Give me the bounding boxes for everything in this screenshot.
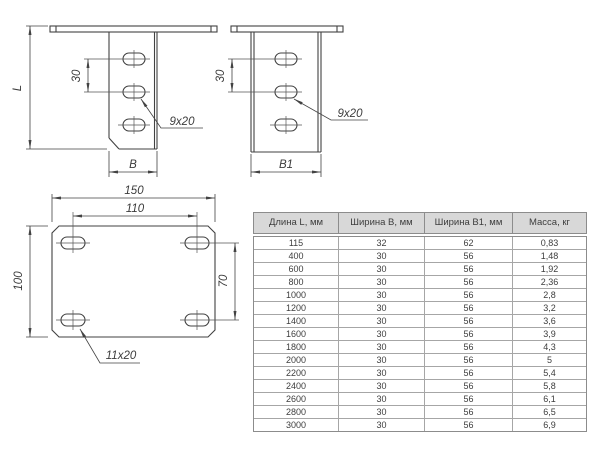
table-cell: 32: [338, 237, 424, 249]
table-cell: 1400: [254, 315, 338, 327]
table-cell: 800: [254, 276, 338, 288]
table-cell: 4,3: [512, 341, 586, 353]
table-cell: 2,8: [512, 289, 586, 301]
table-cell: 5,8: [512, 380, 586, 392]
table-cell: 56: [424, 393, 512, 405]
table-cell: 2400: [254, 380, 338, 392]
table-row: 120030563,2: [254, 302, 586, 315]
page: L 30 B 9x20: [0, 0, 600, 450]
table-cell: 600: [254, 263, 338, 275]
dim-width-label: B1: [279, 159, 293, 171]
table-row: 180030564,3: [254, 341, 586, 354]
table-cell: 30: [338, 354, 424, 366]
table-cell: 6,1: [512, 393, 586, 405]
table-cell: 1000: [254, 289, 338, 301]
table-row: 100030562,8: [254, 289, 586, 302]
table-cell: 30: [338, 341, 424, 353]
table-cell: 56: [424, 289, 512, 301]
table-row: 280030566,5: [254, 406, 586, 419]
dim-plate-height-label: 100: [13, 271, 25, 291]
column-header-mass: Масса, кг: [512, 213, 586, 233]
table-cell: 30: [338, 367, 424, 379]
plate-dimensions: [26, 194, 235, 363]
table-cell: 2600: [254, 393, 338, 405]
table-cell: 2800: [254, 406, 338, 418]
slot-size-label: 9x20: [170, 116, 196, 128]
spec-table-header: Длина L, мм Ширина B, мм Ширина B1, мм М…: [253, 212, 587, 234]
table-cell: 30: [338, 250, 424, 262]
flange-outline: [50, 26, 217, 32]
table-cell: 30: [338, 276, 424, 288]
table-cell: 1,48: [512, 250, 586, 262]
table-cell: 56: [424, 419, 512, 431]
table-cell: 30: [338, 315, 424, 327]
table-cell: 3000: [254, 419, 338, 431]
table-cell: 0,83: [512, 237, 586, 249]
plate-view-drawing: 150 110 100 70 11x20: [13, 185, 239, 363]
table-row: 60030561,92: [254, 263, 586, 276]
table-cell: 56: [424, 354, 512, 366]
table-cell: 30: [338, 393, 424, 405]
table-cell: 30: [338, 302, 424, 314]
table-cell: 56: [424, 406, 512, 418]
table-cell: 56: [424, 341, 512, 353]
table-cell: 2,36: [512, 276, 586, 288]
table-cell: 30: [338, 289, 424, 301]
table-cell: 30: [338, 419, 424, 431]
table-cell: 30: [338, 380, 424, 392]
table-cell: 5: [512, 354, 586, 366]
table-row: 40030561,48: [254, 250, 586, 263]
slot-size-label: 9x20: [338, 108, 364, 120]
table-cell: 2200: [254, 367, 338, 379]
spec-table-body: 11532620,8340030561,4860030561,928003056…: [253, 236, 587, 432]
table-cell: 1,92: [512, 263, 586, 275]
table-row: 260030566,1: [254, 393, 586, 406]
table-cell: 3,6: [512, 315, 586, 327]
slot-size-label: 11x20: [106, 350, 137, 362]
table-cell: 30: [338, 263, 424, 275]
table-cell: 1600: [254, 328, 338, 340]
table-cell: 30: [338, 328, 424, 340]
front-view-drawing: L 30 B 9x20: [12, 26, 217, 177]
dim-pitch-label: 30: [215, 69, 227, 82]
table-cell: 56: [424, 367, 512, 379]
front-view-dimensions: [26, 26, 203, 177]
column-header-width-b1: Ширина B1, мм: [424, 213, 512, 233]
table-row: 11532620,83: [254, 237, 586, 250]
table-cell: 62: [424, 237, 512, 249]
column-header-length: Длина L, мм: [254, 213, 338, 233]
table-cell: 3,9: [512, 328, 586, 340]
table-cell: 56: [424, 315, 512, 327]
dim-pitch-label: 30: [71, 69, 83, 82]
table-cell: 56: [424, 328, 512, 340]
table-row: 80030562,36: [254, 276, 586, 289]
table-cell: 56: [424, 276, 512, 288]
dim-length-label: L: [12, 85, 24, 91]
table-cell: 6,5: [512, 406, 586, 418]
table-row: 160030563,9: [254, 328, 586, 341]
table-row: 300030566,9: [254, 419, 586, 431]
table-cell: 1200: [254, 302, 338, 314]
table-cell: 56: [424, 250, 512, 262]
table-cell: 2000: [254, 354, 338, 366]
column-header-width-b: Ширина B, мм: [338, 213, 424, 233]
table-cell: 6,9: [512, 419, 586, 431]
table-cell: 56: [424, 380, 512, 392]
spec-table: Длина L, мм Ширина B, мм Ширина B1, мм М…: [253, 212, 587, 432]
table-row: 140030563,6: [254, 315, 586, 328]
table-row: 200030565: [254, 354, 586, 367]
plate-slots: [61, 237, 209, 326]
table-cell: 3,2: [512, 302, 586, 314]
dim-plate-width-label: 150: [124, 185, 144, 197]
table-cell: 5,4: [512, 367, 586, 379]
table-row: 240030565,8: [254, 380, 586, 393]
table-cell: 115: [254, 237, 338, 249]
table-cell: 400: [254, 250, 338, 262]
side-view-drawing: 30 B1 9x20: [215, 26, 368, 177]
table-cell: 56: [424, 263, 512, 275]
table-cell: 56: [424, 302, 512, 314]
dim-hole-spacing-y-label: 70: [218, 274, 230, 287]
flange-outline: [231, 26, 343, 32]
table-row: 220030565,4: [254, 367, 586, 380]
dim-width-label: B: [129, 159, 137, 171]
table-cell: 1800: [254, 341, 338, 353]
table-cell: 30: [338, 406, 424, 418]
dim-hole-spacing-x-label: 110: [126, 203, 145, 215]
